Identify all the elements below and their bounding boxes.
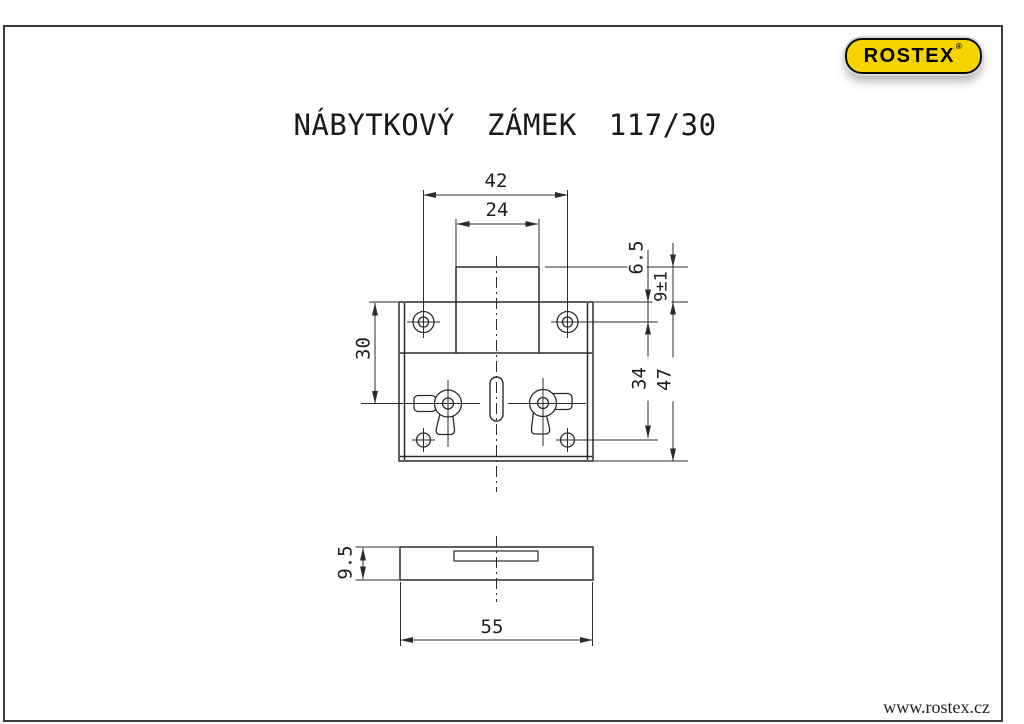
dim-label-42: 42 [472, 172, 520, 191]
dim-label-24: 24 [473, 201, 521, 220]
key-nut-cutout-left [414, 390, 462, 435]
dim-label-9: 9±1 [653, 269, 672, 305]
lock-technical-drawing [0, 0, 1024, 724]
dim-label-9-5: 9.5 [337, 543, 356, 583]
key-nut-cutout-right [530, 390, 573, 435]
drawing-sheet: ROSTEX® NÁBYTKOVÝ ZÁMEK 117/30 [0, 0, 1024, 724]
website-url: www.rostex.cz [883, 697, 990, 718]
dim-label-47: 47 [656, 358, 675, 402]
dim-label-30: 30 [355, 327, 374, 371]
dim-label-6-5: 6.5 [628, 236, 647, 280]
dim-label-34: 34 [631, 357, 650, 401]
dim-label-55: 55 [468, 618, 516, 637]
